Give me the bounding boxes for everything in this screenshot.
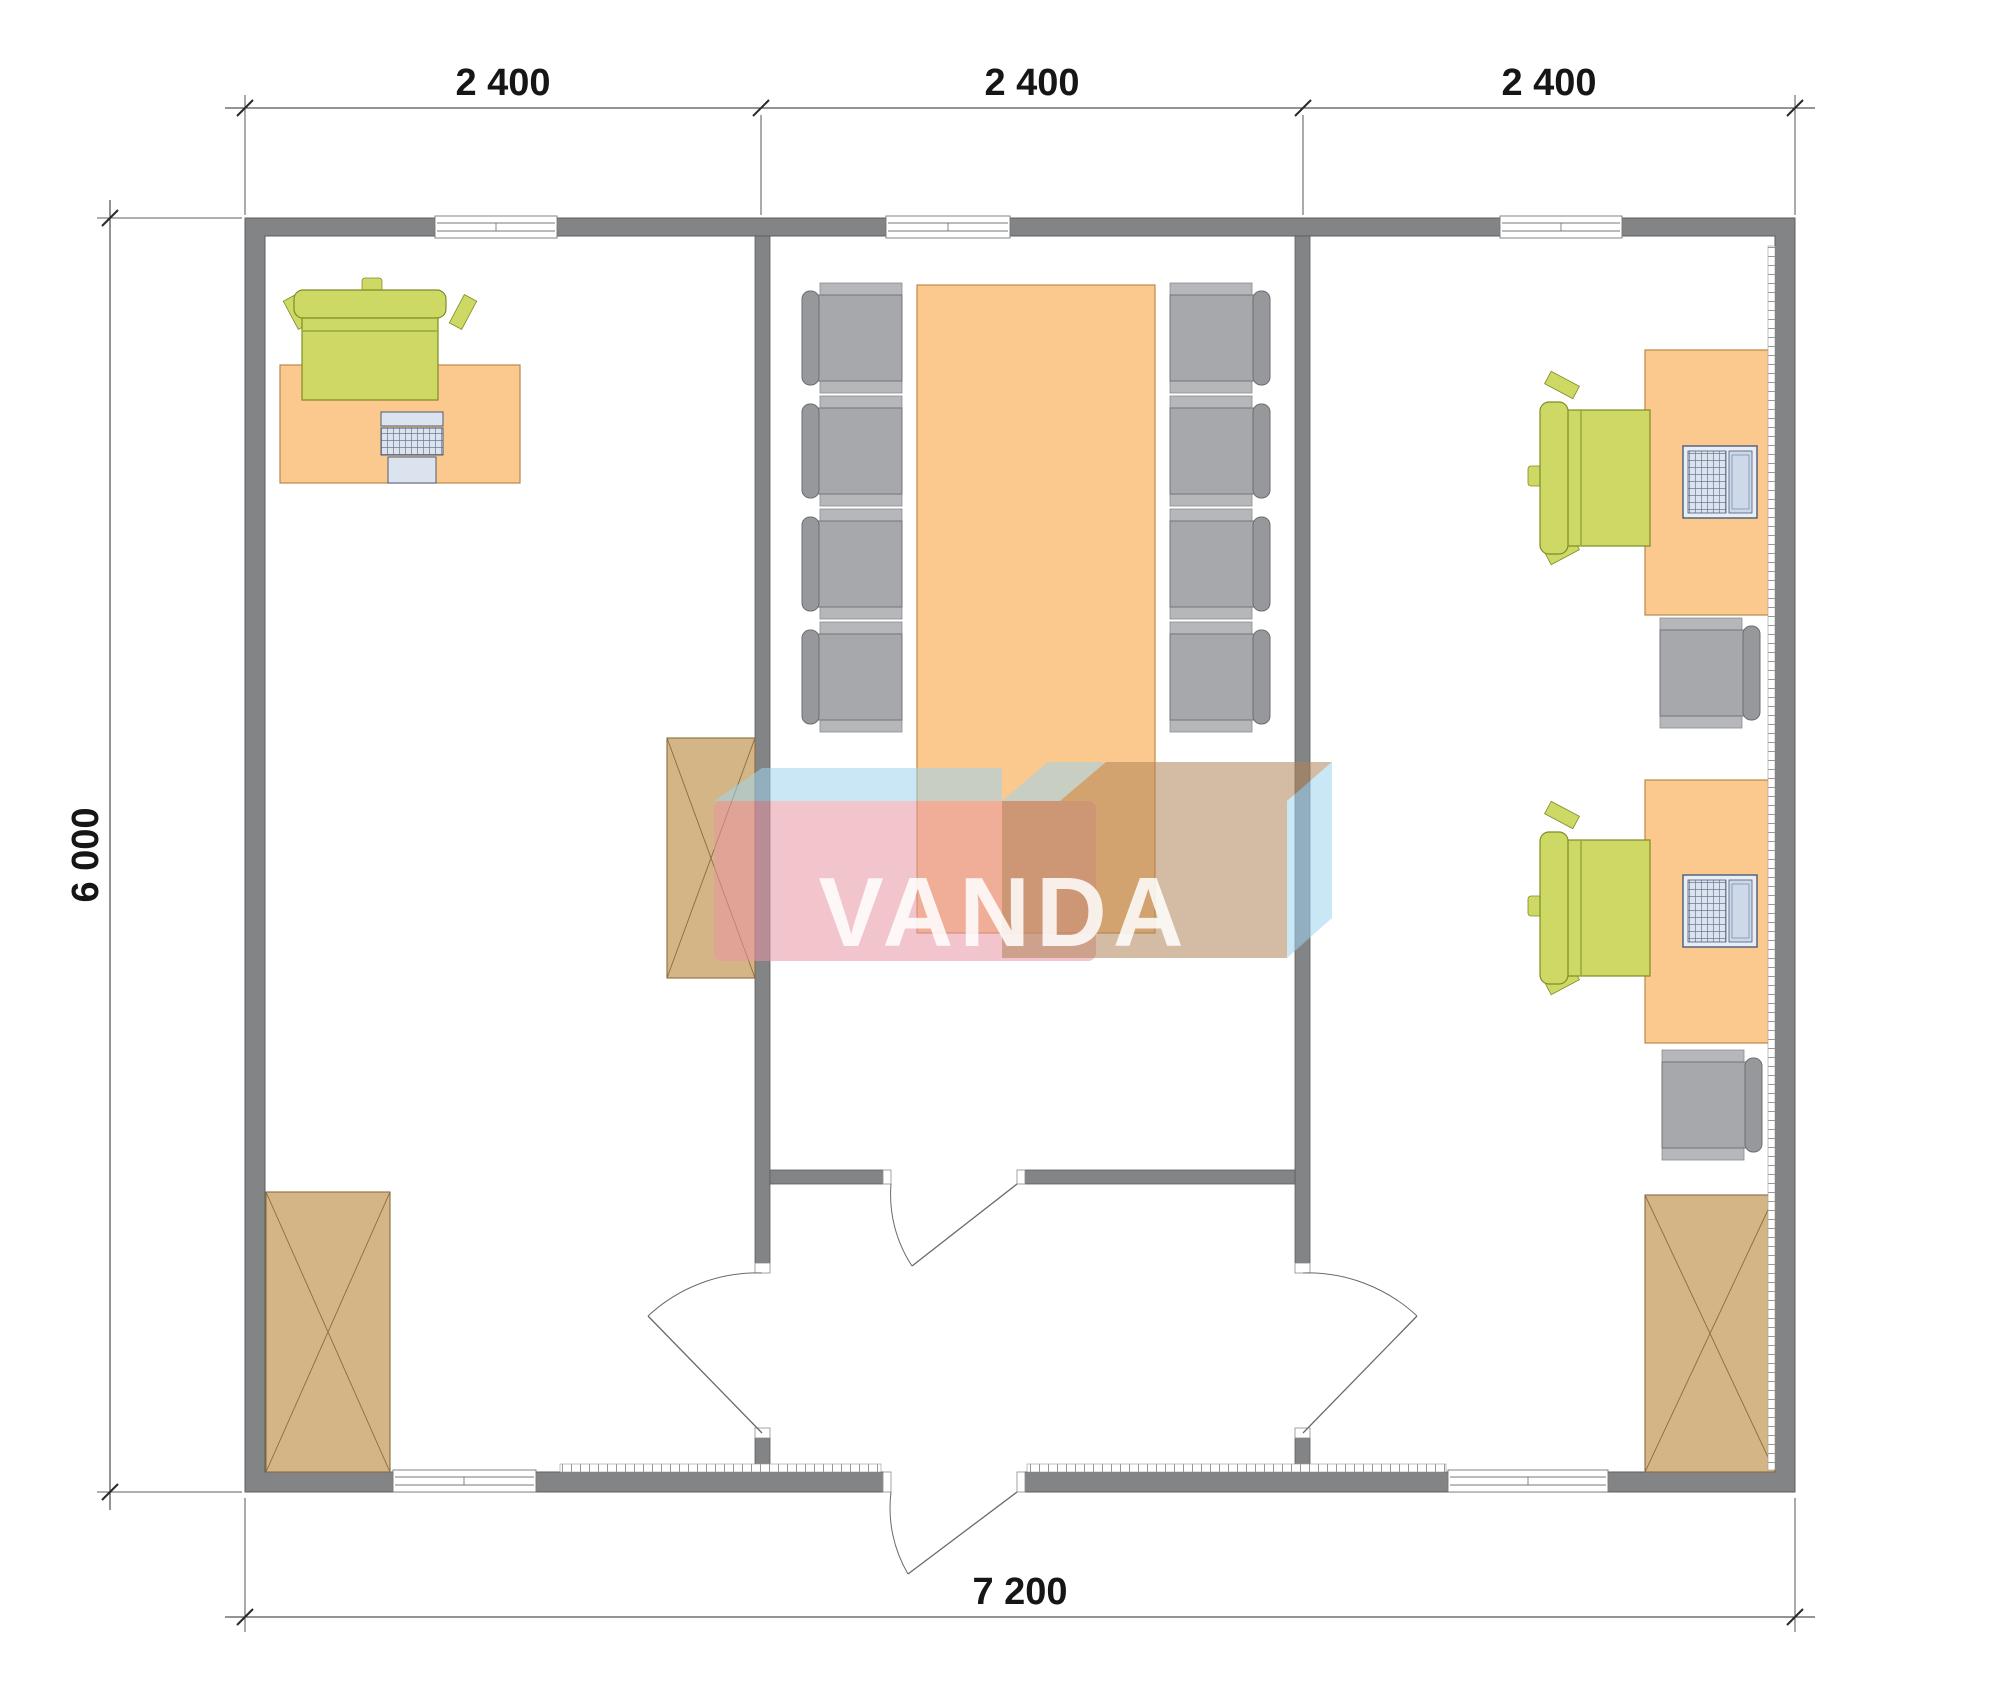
conference-chair-left-1 xyxy=(802,283,902,393)
office-chair-right-room-1 xyxy=(1528,371,1650,564)
conference-chair-left-4 xyxy=(802,622,902,732)
vestibule-north-wall xyxy=(770,1170,1295,1184)
door-swing-arc xyxy=(890,1492,908,1574)
partition-wall-left xyxy=(755,236,770,1263)
green-chair xyxy=(1528,371,1650,564)
window-top-middle xyxy=(886,216,1010,238)
conference-chair-right-4 xyxy=(1170,622,1270,732)
door-swing-arc xyxy=(1303,1273,1417,1316)
dim-label-left: 6 000 xyxy=(65,807,107,902)
window-bottom-right xyxy=(1448,1470,1608,1492)
conference-chair-left-3 xyxy=(802,509,902,619)
door-leaf xyxy=(1303,1316,1417,1433)
dim-label-top-1: 2 400 xyxy=(455,62,550,104)
wardrobe-cabinet-bottom-left xyxy=(266,1192,390,1472)
keyboard xyxy=(381,428,443,455)
door-vestibule-north xyxy=(891,1184,1017,1266)
floor-plan-drawing: VANDA 2 400 2 400 2 400 6 000 7 200 xyxy=(0,0,2000,1704)
door-jamb xyxy=(1017,1472,1025,1492)
watermark-box-top-face xyxy=(1060,762,1332,801)
window-top-left xyxy=(435,216,557,238)
door-jamb xyxy=(1295,1428,1310,1438)
door-swing-arc xyxy=(891,1184,912,1266)
watermark-blue-top-left xyxy=(714,768,1002,801)
window-frame xyxy=(393,1470,536,1492)
green-chair xyxy=(1528,801,1650,994)
radiator-strip-bottom-left xyxy=(560,1464,881,1472)
window-bottom-left xyxy=(393,1470,536,1492)
dim-label-top-3: 2 400 xyxy=(1501,62,1596,104)
door-jamb xyxy=(755,1263,770,1273)
side-chair-right-room-2 xyxy=(1662,1050,1762,1160)
side-chair-right-room-1 xyxy=(1660,618,1760,728)
office-chair-right-room-2 xyxy=(1528,801,1650,994)
conference-chair-right-3 xyxy=(1170,509,1270,619)
door-leaf xyxy=(648,1316,762,1433)
partition-wall-right xyxy=(1295,236,1310,1263)
door-swing-arc xyxy=(648,1273,762,1316)
wardrobe-cabinet-bottom-right xyxy=(1645,1195,1775,1472)
system-pad xyxy=(388,457,436,483)
watermark-text: VANDA xyxy=(818,857,1189,967)
dim-label-top-2: 2 400 xyxy=(984,62,1079,104)
door-jamb xyxy=(883,1170,891,1184)
door-entrance-south xyxy=(890,1492,1017,1574)
door-jamb xyxy=(1017,1170,1025,1184)
door-vestibule-east xyxy=(1303,1273,1417,1433)
conference-chair-right-1 xyxy=(1170,283,1270,393)
door-leaf xyxy=(912,1184,1017,1266)
door-vestibule-west xyxy=(648,1273,762,1433)
vanda-watermark: VANDA xyxy=(714,762,1332,967)
door-opening-north xyxy=(883,1168,1025,1186)
door-jamb xyxy=(755,1428,770,1438)
door-jamb xyxy=(883,1472,891,1492)
dim-label-bottom: 7 200 xyxy=(972,1571,1067,1613)
radiator-strip-right-wall xyxy=(1768,246,1775,1470)
monitor-bar xyxy=(381,412,443,426)
door-leaf xyxy=(908,1492,1017,1574)
floor-plan-canvas: VANDA 2 400 2 400 2 400 6 000 7 200 xyxy=(0,0,2000,1704)
radiator-strip-bottom-right xyxy=(1027,1464,1446,1472)
desktop-computer xyxy=(381,412,443,483)
conference-chair-left-2 xyxy=(802,396,902,506)
door-jamb xyxy=(1295,1263,1310,1273)
conference-chair-right-2 xyxy=(1170,396,1270,506)
window-top-right xyxy=(1500,216,1622,238)
door-opening-entrance xyxy=(883,1469,1025,1494)
laptop-2 xyxy=(1683,875,1757,947)
laptop-1 xyxy=(1683,446,1757,518)
